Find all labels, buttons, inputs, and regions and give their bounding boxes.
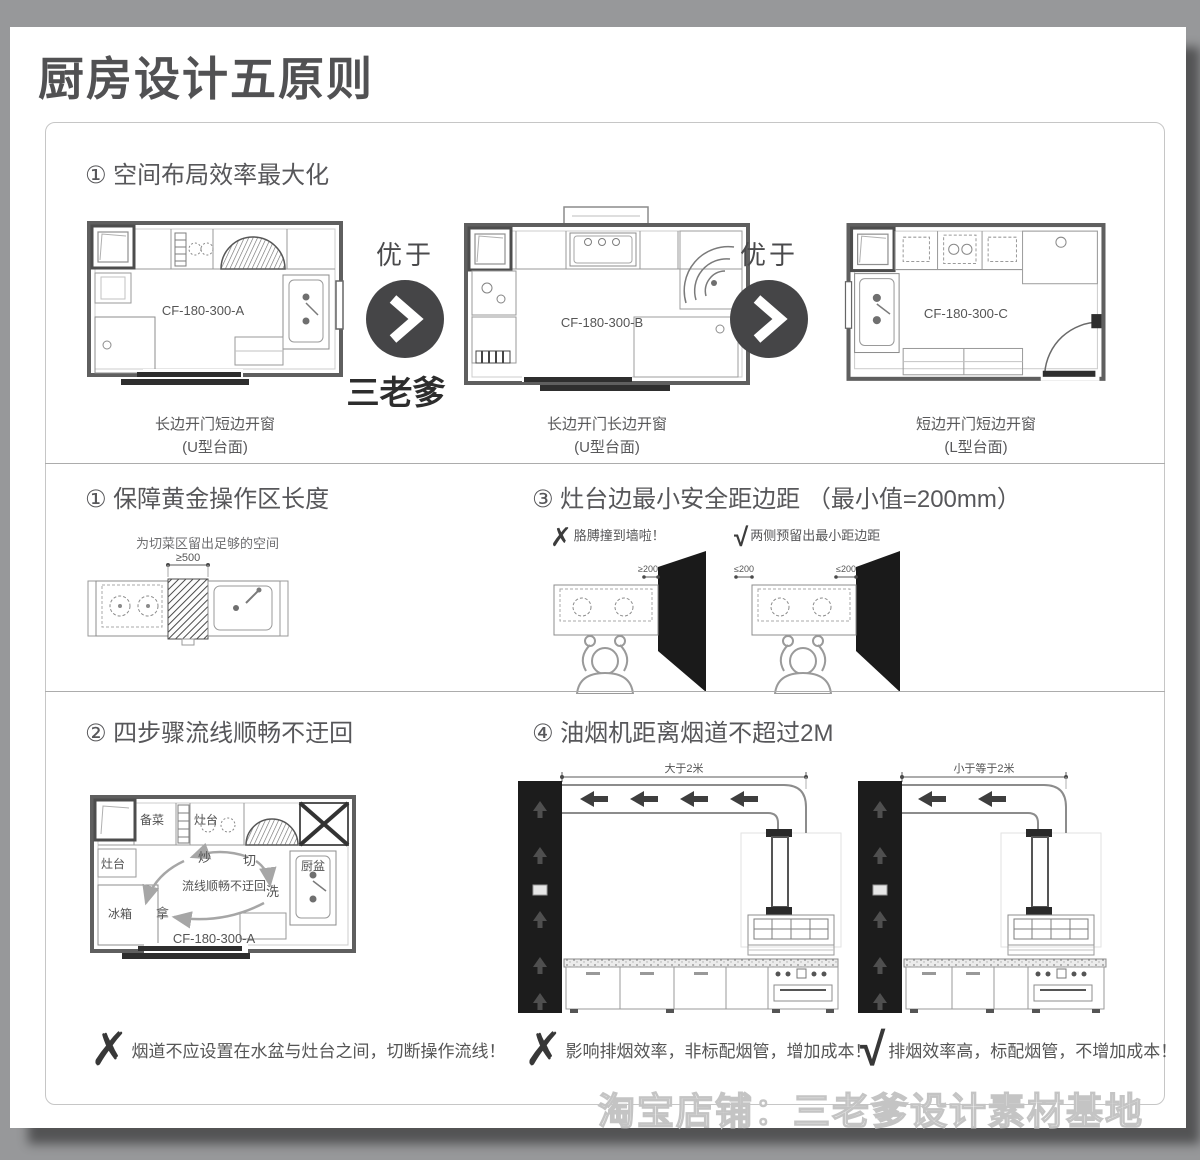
plan-a: CF-180-300-A (85, 219, 345, 394)
left-arrow-icon (580, 791, 758, 807)
label-sink: 厨盆 (301, 857, 325, 874)
plan-c-drawing: CF-180-300-C (844, 221, 1108, 393)
golden-zone-diagram: ≥500 (86, 551, 296, 656)
hand (813, 636, 823, 646)
door-threshold (524, 377, 632, 382)
check-mark-icon: √ (860, 1029, 885, 1069)
label-prep: 备菜 (140, 811, 164, 828)
cooktop (554, 585, 658, 635)
better-label: 优于 (726, 235, 812, 272)
section3-bad-diagram: ≥200 (548, 549, 713, 699)
plan-c-caption: 短边开门短边开窗 (L型台面) (844, 413, 1108, 459)
chevron-right-icon (730, 280, 808, 358)
canvas: 厨房设计五原则 ① 空间布局效率最大化 (0, 0, 1200, 1160)
duct-bad-elevation: 大于2米 (516, 763, 846, 1018)
hand (615, 636, 625, 646)
duct-inner (562, 813, 778, 833)
countertop (564, 959, 838, 967)
label-fridge: 冰箱 (108, 905, 132, 922)
dimension-200: ≥200 (638, 564, 658, 574)
door-leaf (1043, 371, 1096, 377)
plan-c-code: CF-180-300-C (924, 306, 1008, 321)
range-unit (774, 969, 832, 1001)
section3-bad-caption: ✗ 胳膊撞到墙啦！ (550, 527, 665, 547)
divider-1 (45, 463, 1165, 464)
left-arrow-icon (918, 791, 1006, 807)
duct-outer (902, 785, 1066, 833)
page-title: 厨房设计五原则 (38, 43, 374, 109)
dimension-500: ≥500 (176, 552, 200, 564)
person-head (790, 648, 816, 674)
cutting-zone (168, 579, 208, 639)
better-arrow-2: 优于 (726, 235, 812, 358)
section5-header: ④ 油烟机距离烟道不超过2M (532, 713, 834, 748)
x-mark-icon: ✗ (90, 1029, 129, 1069)
section4-header: ② 四步骤流线顺畅不迂回 (85, 713, 353, 748)
label-cut: 切 (243, 850, 256, 869)
plan-b-code: CF-180-300-B (561, 315, 643, 330)
dimension-200-left: ≤200 (734, 564, 754, 574)
hand (585, 636, 595, 646)
plan-c: CF-180-300-C (844, 221, 1108, 398)
label-wash: 洗 (266, 881, 279, 900)
section1-header: ① 空间布局效率最大化 (85, 155, 329, 190)
x-mark-icon: ✗ (524, 1029, 563, 1069)
door-threshold (138, 946, 242, 951)
hand (783, 636, 793, 646)
door-threshold (137, 372, 241, 377)
plan-a-drawing: CF-180-300-A (85, 219, 345, 389)
brand-watermark: 三老爹 (344, 366, 448, 414)
dimension-200-right: ≤200 (836, 564, 856, 574)
countertop (904, 959, 1106, 967)
better-arrow-1: 优于 三老爹 (362, 235, 448, 414)
cooktop (752, 585, 856, 635)
flow-plan: CF-180-300-A 备菜 灶台 灶台 炒 切 洗 拿 冰箱 厨盆 流线顺畅… (88, 793, 358, 993)
section3-header: ③ 灶台边最小安全距边距 （最小值=200mm） (532, 479, 1021, 514)
label-flow: 流线顺畅不迂回 (182, 877, 266, 894)
section2-header: ① 保障黄金操作区长度 (85, 479, 329, 514)
better-label: 优于 (362, 235, 448, 272)
label-take: 拿 (156, 903, 169, 922)
shop-watermark: 淘宝店铺：三老爹设计素材基地 (598, 1081, 1144, 1135)
dimension-le-2m: 小于等于2米 (953, 763, 1014, 775)
plan-b-caption: 长边开门长边开窗 (U型台面) (462, 413, 752, 459)
person-head (592, 648, 618, 674)
wall-wedge (658, 551, 706, 692)
duct-good-elevation: 小于等于2米 (856, 763, 1114, 1018)
wall-wedge (856, 551, 900, 692)
section2-note: 为切菜区留出足够的空间 (136, 533, 279, 552)
label-fry: 炒 (198, 847, 211, 866)
section5-bad-note: ✗ 影响排烟效率，非标配烟管，增加成本！ (524, 1029, 872, 1069)
dimension-gt-2m: 大于2米 (664, 763, 703, 775)
plan-b: CF-180-300-B (462, 205, 752, 405)
page: 厨房设计五原则 ① 空间布局效率最大化 (10, 27, 1186, 1128)
hood-pipe (772, 837, 788, 907)
plan-b-drawing: CF-180-300-B (462, 205, 752, 400)
range-unit (1034, 969, 1092, 1001)
check-mark-icon: √ (734, 527, 748, 547)
hood-pipe (1032, 837, 1048, 907)
plan-a-code: CF-180-300-A (162, 303, 245, 318)
label-stove-top: 灶台 (194, 811, 218, 828)
section3-good-caption: √ 两侧预留出最小距边距 (734, 527, 880, 547)
section3-good-diagram: ≤200 ≤200 (732, 549, 907, 699)
x-mark-icon: ✗ (550, 527, 572, 547)
duct-outer (562, 785, 806, 833)
label-stove-left: 灶台 (101, 855, 125, 872)
divider-2 (45, 691, 1165, 692)
section4-note: ✗ 烟道不应设置在水盆与灶台之间，切断操作流线！ (90, 1029, 506, 1069)
flow-plan-code: CF-180-300-A (173, 931, 256, 946)
duct-inner (902, 813, 1038, 833)
section5-good-note: √ 排烟效率高，标配烟管，不增加成本！ (860, 1029, 1177, 1069)
chevron-right-icon (366, 280, 444, 358)
sink (208, 581, 280, 636)
plan-a-caption: 长边开门短边开窗 (U型台面) (85, 413, 345, 459)
